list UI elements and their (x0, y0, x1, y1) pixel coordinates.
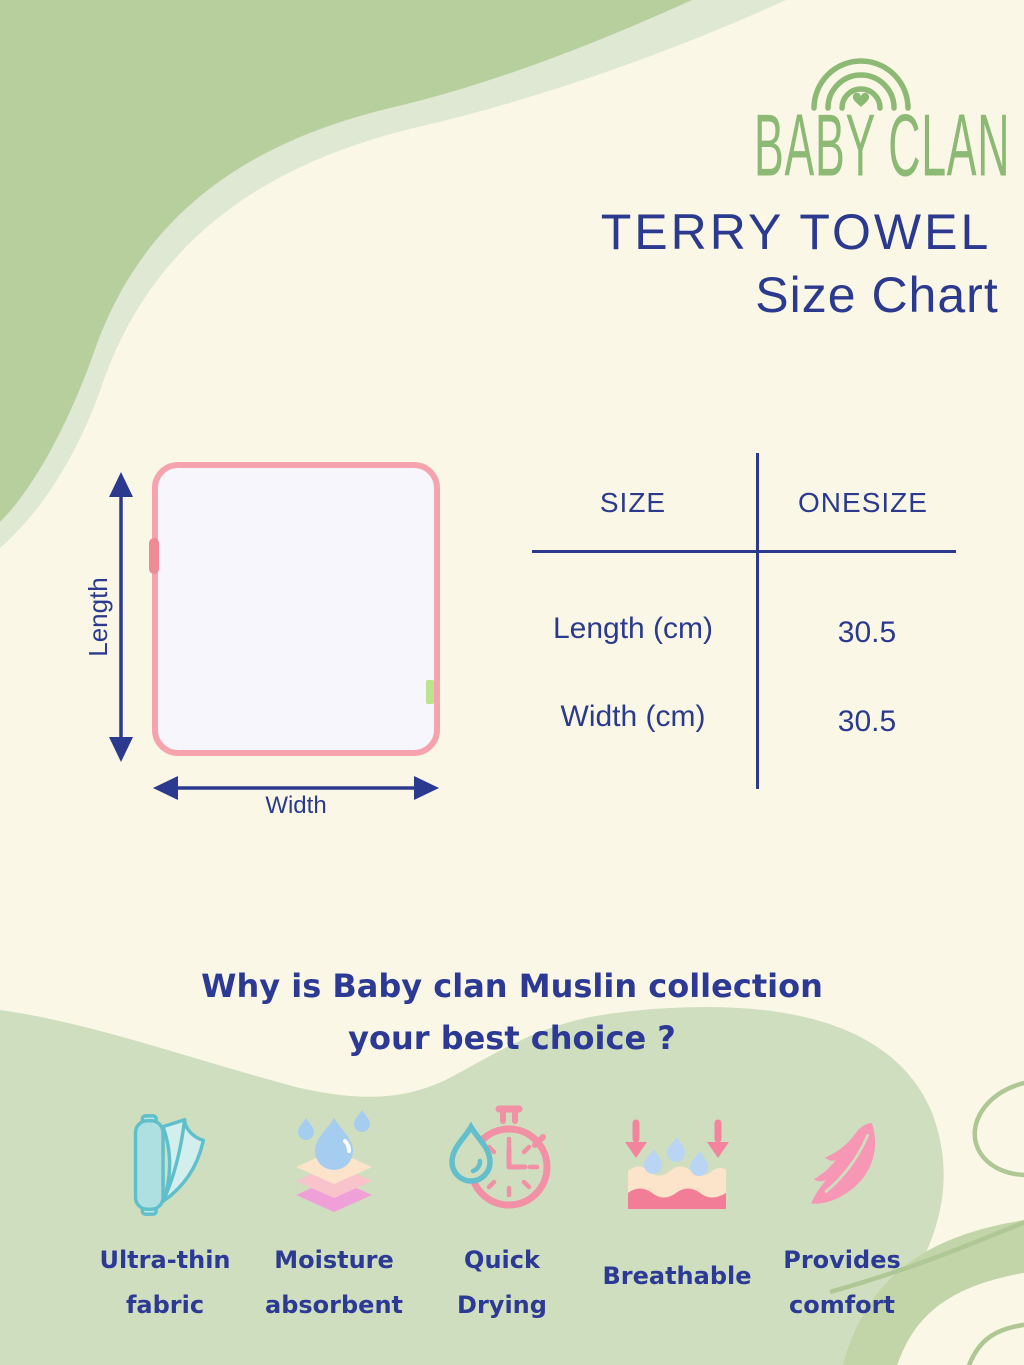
table-header-onesize: ONESIZE (753, 487, 973, 519)
feature-label-line2: Drying (402, 1285, 602, 1326)
moisture-layers-icon (274, 1106, 394, 1226)
feature-provides-comfort: Provides comfort (742, 1096, 942, 1326)
feature-quick-drying: Quick Drying (402, 1096, 602, 1326)
width-axis-label: Width (196, 792, 396, 820)
table-row-length-value: 30.5 (757, 616, 977, 650)
feature-label-line1: Provides (742, 1240, 942, 1281)
towel-brand-tag (426, 680, 434, 704)
fabric-roll-icon (106, 1107, 224, 1225)
feature-label-line2: comfort (742, 1285, 942, 1326)
brand-logo-text: BABY CLAN (754, 96, 970, 197)
table-row-width-value: 30.5 (757, 705, 977, 739)
feather-icon (786, 1110, 898, 1222)
why-section-heading: Why is Baby clan Muslin collection your … (0, 960, 1024, 1064)
feature-label-line1: Quick (402, 1240, 602, 1281)
why-heading-line1: Why is Baby clan Muslin collection (0, 960, 1024, 1012)
breathable-fabric-icon (612, 1111, 742, 1221)
why-heading-line2: your best choice ? (0, 1012, 1024, 1064)
table-header-size: SIZE (523, 487, 743, 519)
length-axis-label: Length (83, 557, 113, 677)
stopwatch-waterdrop-icon (437, 1101, 567, 1231)
towel-image (152, 462, 440, 756)
swirl-loop-decoration (965, 1069, 1024, 1187)
corner-line-decoration (968, 1324, 1024, 1365)
table-row-width-label: Width (cm) (523, 700, 743, 734)
table-row-length-label: Length (cm) (523, 612, 743, 646)
towel-hanging-loop (149, 538, 159, 574)
top-left-blob-dark (0, 0, 692, 522)
product-title: TERRY TOWEL (516, 203, 1024, 261)
table-horizontal-divider (532, 550, 956, 553)
size-chart-subtitle: Size Chart (597, 266, 1024, 324)
infographic-canvas: BABY CLAN TERRY TOWEL Size Chart Length … (0, 0, 1024, 1365)
